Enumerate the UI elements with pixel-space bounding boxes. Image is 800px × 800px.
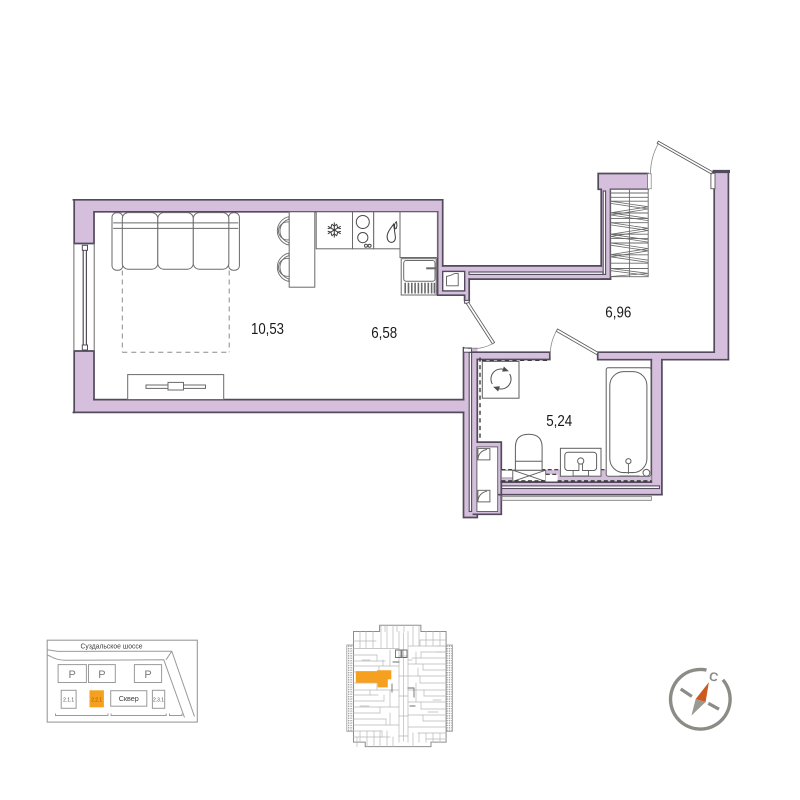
svg-text:5,24: 5,24 [546, 413, 572, 430]
svg-text:2.3.1: 2.3.1 [153, 698, 164, 704]
svg-text:10,53: 10,53 [251, 321, 284, 338]
svg-text:Суздальское шоссе: Суздальское шоссе [81, 642, 143, 651]
svg-text:P: P [144, 669, 151, 681]
svg-text:Сквер: Сквер [119, 694, 139, 703]
svg-text:6,58: 6,58 [371, 325, 397, 342]
svg-text:2.1.1: 2.1.1 [63, 698, 74, 704]
svg-text:P: P [98, 669, 105, 681]
svg-text:P: P [69, 669, 76, 681]
svg-text:6,96: 6,96 [605, 305, 631, 322]
svg-text:2.2.1: 2.2.1 [91, 697, 102, 703]
